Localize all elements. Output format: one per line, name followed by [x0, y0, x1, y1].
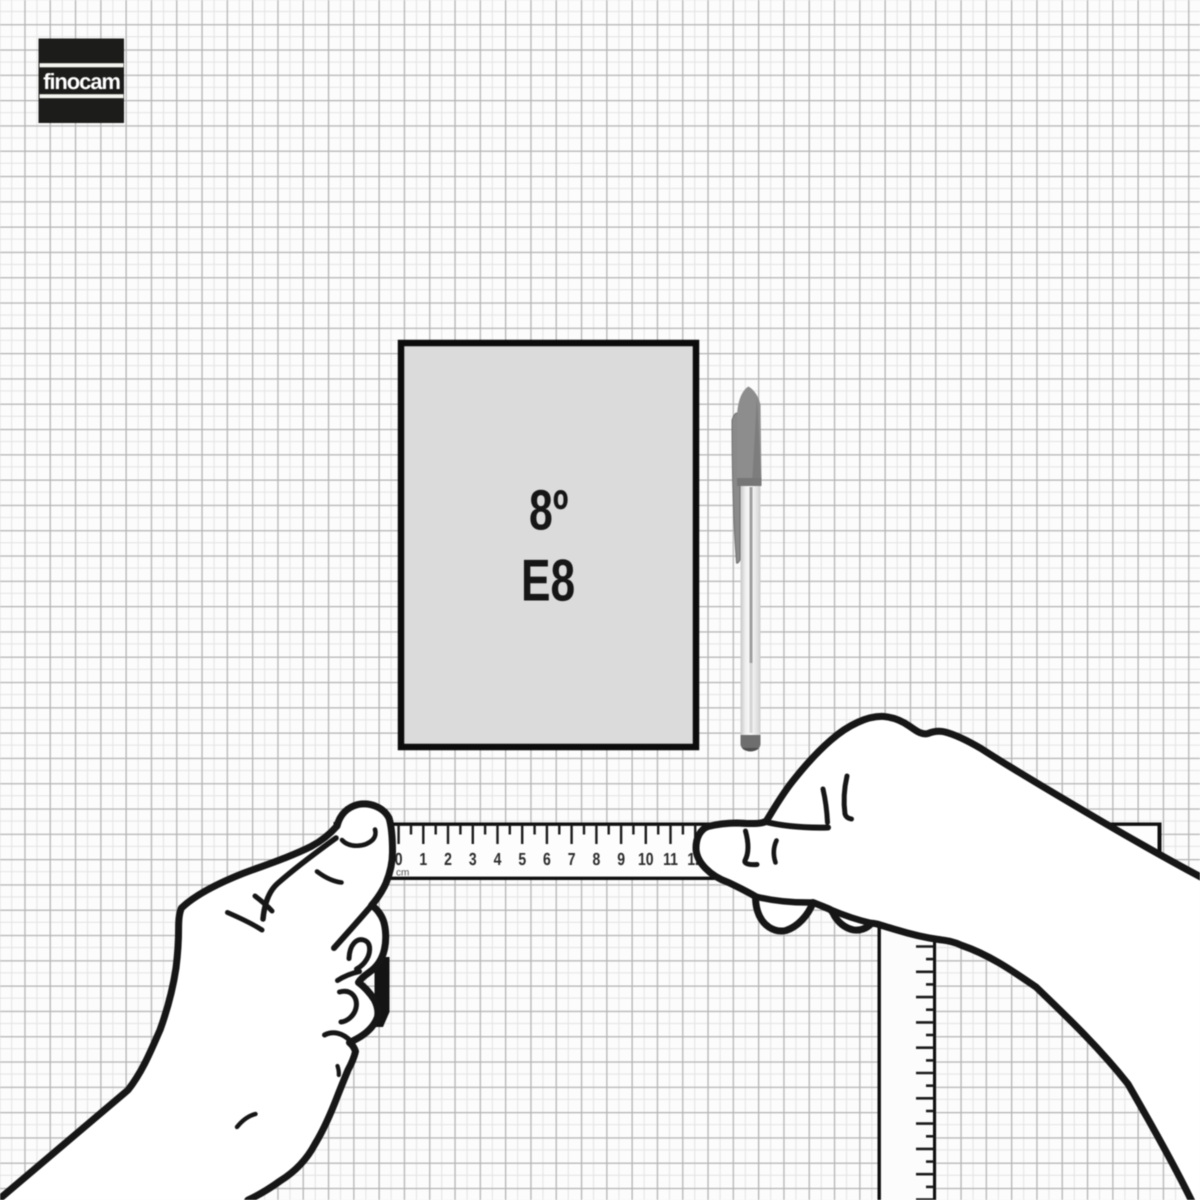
- svg-text:cm: cm: [396, 868, 409, 879]
- svg-text:11: 11: [663, 849, 678, 869]
- svg-text:finocam: finocam: [43, 69, 120, 94]
- svg-text:10: 10: [638, 849, 654, 869]
- svg-text:7: 7: [568, 849, 576, 869]
- svg-text:6: 6: [543, 849, 551, 869]
- svg-text:9: 9: [617, 849, 625, 869]
- svg-text:1: 1: [419, 849, 427, 869]
- svg-text:5: 5: [518, 849, 526, 869]
- svg-text:8: 8: [593, 849, 601, 869]
- svg-text:8º: 8º: [529, 479, 568, 543]
- svg-text:E8: E8: [521, 548, 575, 614]
- svg-text:4: 4: [494, 849, 502, 869]
- svg-text:3: 3: [469, 849, 477, 869]
- svg-text:2: 2: [444, 849, 452, 869]
